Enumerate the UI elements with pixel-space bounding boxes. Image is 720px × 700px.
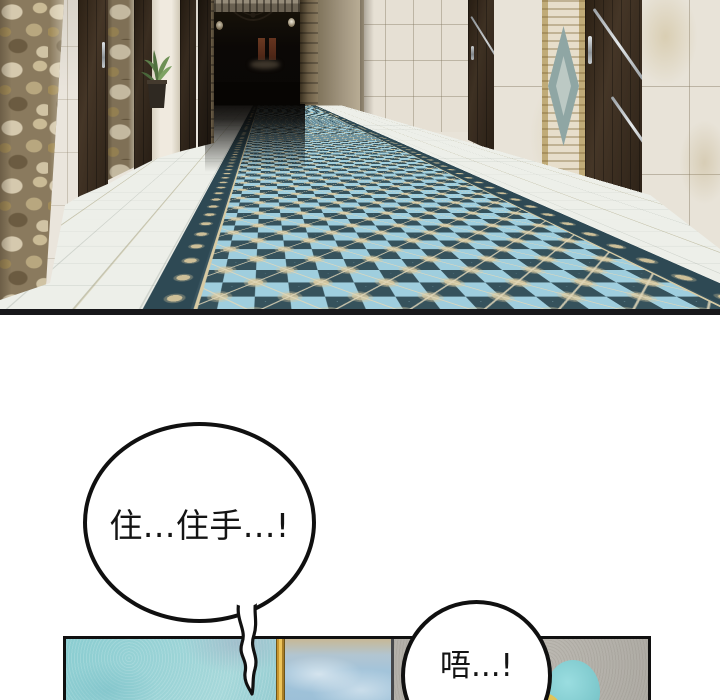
door-handle-icon — [588, 36, 592, 64]
comic-page: 住...住手...! 唔...! — [0, 0, 720, 700]
corridor-cornice — [207, 0, 307, 12]
right-door-near — [585, 0, 642, 193]
speech-bubble-tail — [224, 597, 282, 698]
left-door-3 — [180, 0, 196, 156]
sky-blue-wall-texture — [285, 639, 391, 700]
door-trim-icon — [593, 8, 645, 80]
speech-text-2: 唔...! — [440, 640, 513, 685]
shadowed-wall-corner — [318, 0, 364, 120]
left-door-1 — [78, 0, 108, 198]
panel-room — [63, 636, 651, 700]
far-red-door-right — [269, 38, 276, 60]
corridor-end-floor-shadow — [205, 76, 305, 172]
door-handle-icon — [471, 46, 474, 60]
wall-sconce-left-icon — [216, 21, 223, 30]
far-red-door-left — [258, 38, 265, 60]
speech-bubble-1: 住...住手...! — [83, 422, 316, 623]
door-handle-icon — [102, 42, 105, 68]
wall-sconce-right-icon — [288, 18, 295, 27]
potted-plant-icon — [140, 44, 174, 114]
bubble-tail-junction — [233, 589, 259, 606]
speech-bubble-2: 唔...! — [401, 600, 552, 700]
stone-pillar-2 — [108, 0, 134, 180]
mosaic-pillar — [542, 0, 585, 178]
right-door-far — [468, 0, 494, 152]
speech-text-1: 住...住手...! — [109, 499, 289, 547]
panel-hallway — [0, 0, 720, 315]
far-floor-glow — [250, 60, 280, 69]
left-door-4 — [198, 0, 211, 150]
panel-border — [0, 309, 720, 315]
